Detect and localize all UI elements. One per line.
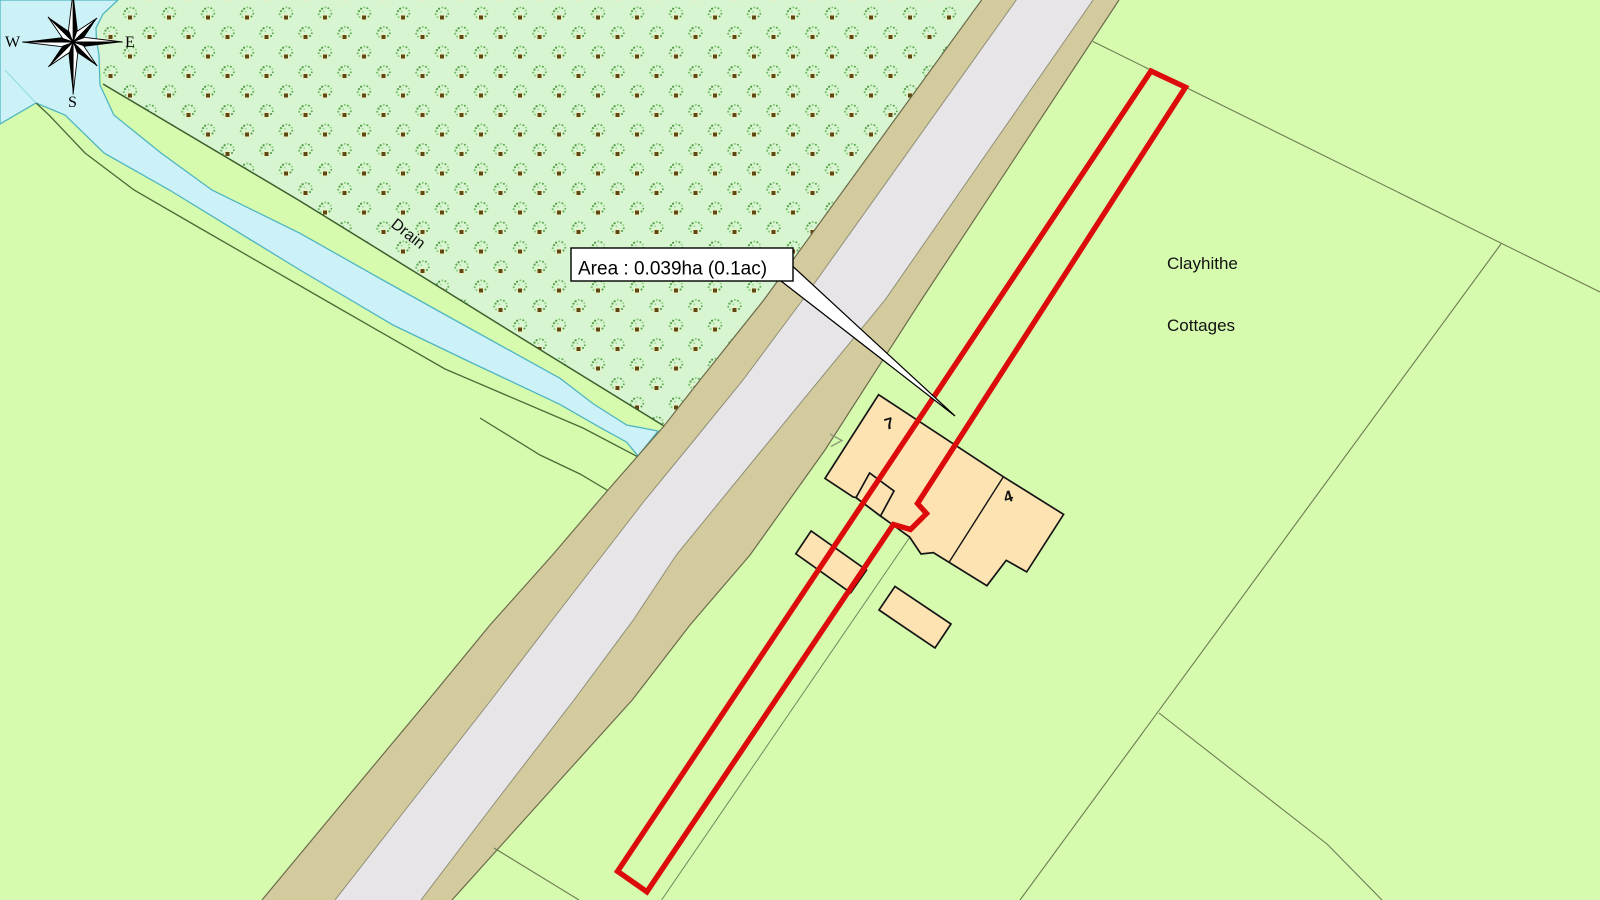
svg-text:Area : 0.039ha (0.1ac): Area : 0.039ha (0.1ac) [578, 259, 767, 280]
svg-text:Cottages: Cottages [1167, 316, 1235, 335]
svg-text:E: E [125, 34, 135, 51]
svg-text:S: S [68, 94, 77, 111]
svg-text:Clayhithe: Clayhithe [1167, 254, 1238, 273]
svg-text:W: W [5, 34, 21, 51]
